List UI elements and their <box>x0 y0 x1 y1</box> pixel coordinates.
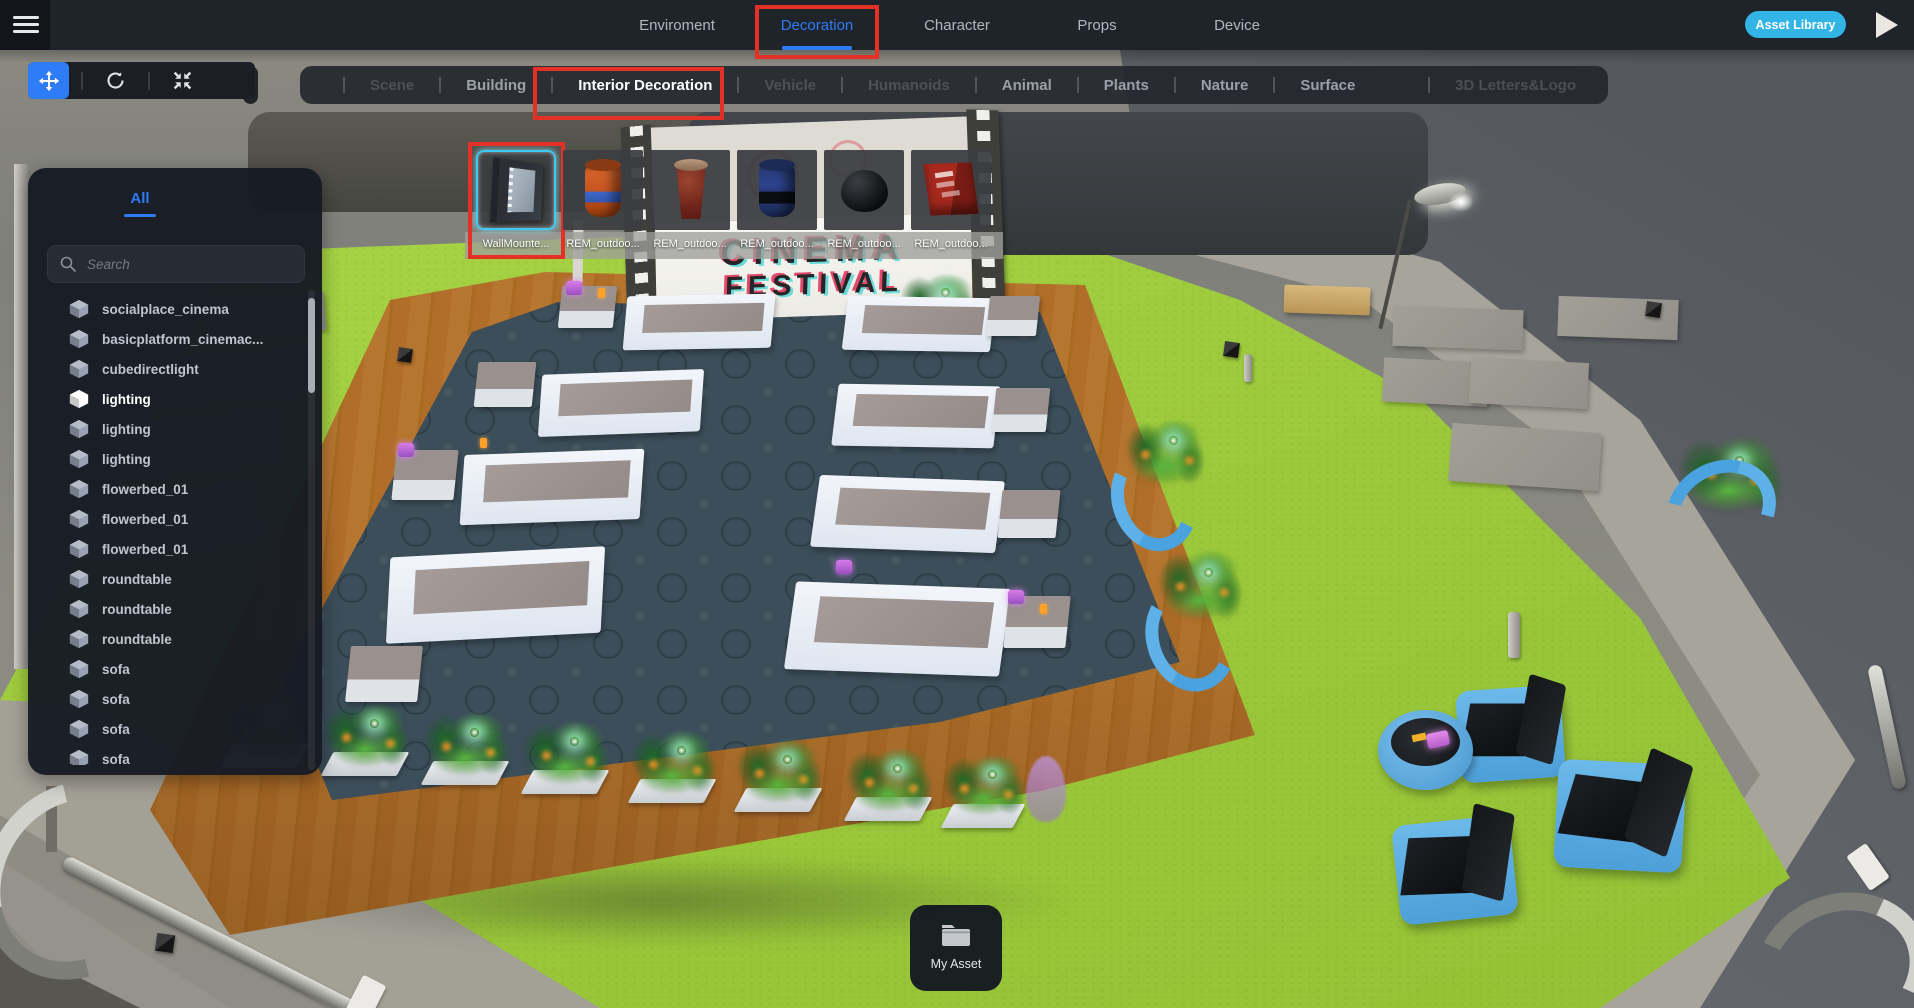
asset-tile[interactable]: REM_outdoo... <box>824 150 904 257</box>
black-cube-3d[interactable] <box>1223 341 1240 358</box>
asset-list-item-label: sofa <box>102 662 130 677</box>
glow-item-3d <box>480 438 487 448</box>
cube-icon <box>68 748 90 765</box>
stone-slab-3d[interactable] <box>1392 306 1523 351</box>
asset-thumbnail <box>563 150 643 230</box>
asset-thumbnail <box>650 150 730 230</box>
asset-list-item-label: roundtable <box>102 602 172 617</box>
plant-3d[interactable] <box>515 714 615 792</box>
blue-armchair-3d[interactable] <box>1553 759 1686 874</box>
plant-3d[interactable] <box>415 705 515 783</box>
topbar-shadow <box>0 50 1914 63</box>
side-table-3d[interactable] <box>474 362 537 407</box>
glow-item-3d <box>1040 604 1047 614</box>
side-table-3d[interactable] <box>986 296 1040 336</box>
cube-icon <box>68 658 90 680</box>
blue-armchair-3d[interactable] <box>1455 684 1566 783</box>
asset-list-item[interactable]: roundtable <box>40 624 300 654</box>
sofa-3d[interactable] <box>538 369 704 437</box>
folder-icon <box>940 922 972 948</box>
category-item-label: Humanoids <box>868 77 950 94</box>
sofa-3d[interactable] <box>386 546 605 644</box>
category-bar: Scene Building Interior Decoration Vehic… <box>300 66 1608 104</box>
asset-tile-label: REM_outdoo... <box>737 232 817 257</box>
asset-list-item[interactable]: flowerbed_01 <box>40 474 300 504</box>
asset-list-item[interactable]: roundtable <box>40 564 300 594</box>
cube-icon <box>68 598 90 620</box>
black-cube-3d[interactable] <box>155 933 175 953</box>
top-tab[interactable]: Enviroment <box>632 0 722 50</box>
category-item[interactable]: Humanoids <box>816 77 950 94</box>
asset-thumbnail <box>824 150 904 230</box>
category-item-label: Interior Decoration <box>578 77 712 94</box>
search-input[interactable] <box>85 256 292 273</box>
bollard-3d[interactable] <box>1508 612 1520 658</box>
asset-list-item[interactable]: sofa <box>40 714 300 744</box>
asset-list-item[interactable]: lighting <box>40 414 300 444</box>
asset-list-item-label: socialplace_cinema <box>102 302 229 317</box>
asset-thumbnail-art <box>650 150 730 230</box>
asset-list-item-label: roundtable <box>102 632 172 647</box>
plant-3d[interactable] <box>728 732 828 810</box>
asset-list-item[interactable]: basicplatform_cinemac... <box>40 324 300 354</box>
asset-tile[interactable]: WallMounte... <box>476 150 556 257</box>
scrollbar-thumb[interactable] <box>308 298 315 393</box>
asset-thumbnail <box>911 150 991 230</box>
asset-library-button[interactable]: Asset Library <box>1745 11 1846 38</box>
asset-list-item[interactable]: sofa <box>40 684 300 714</box>
top-tab-label: Decoration <box>781 17 854 34</box>
asset-list-item[interactable]: cubedirectlight <box>40 354 300 384</box>
asset-thumbnail-art <box>911 150 991 230</box>
cube-icon <box>68 358 90 380</box>
asset-list-item[interactable]: sofa <box>40 744 300 765</box>
blue-armchair-3d[interactable] <box>1391 814 1519 926</box>
sofa-3d[interactable] <box>623 294 776 351</box>
cube-icon <box>68 328 90 350</box>
asset-thumbnail-art <box>737 150 817 230</box>
cube-icon <box>68 628 90 650</box>
top-tab[interactable]: Device <box>1192 0 1282 50</box>
glow-item-3d[interactable] <box>566 281 582 295</box>
bench-table-3d[interactable] <box>1284 285 1371 316</box>
black-cube-3d[interactable] <box>1645 301 1662 318</box>
my-asset-label: My Asset <box>931 957 982 971</box>
category-item-label: Scene <box>370 77 414 94</box>
move-icon <box>38 70 60 92</box>
category-item[interactable]: Nature <box>1149 77 1249 94</box>
top-tabs: Enviroment Decoration Character Props <box>632 0 1282 50</box>
search-box <box>47 245 305 283</box>
asset-list-item-label: basicplatform_cinemac... <box>102 332 263 347</box>
cube-icon <box>68 718 90 740</box>
toolbar-divider <box>148 72 150 90</box>
collapse-tool-button[interactable] <box>162 62 203 99</box>
side-table-3d[interactable] <box>992 388 1051 432</box>
stone-slab-3d[interactable] <box>1448 423 1602 491</box>
asset-list-item[interactable]: sofa <box>40 654 300 684</box>
category-item[interactable]: Surface <box>1248 77 1355 94</box>
plant-3d[interactable] <box>838 741 938 819</box>
top-tab-label: Enviroment <box>639 17 715 34</box>
asset-tile[interactable]: REM_outdoo... <box>911 150 991 257</box>
my-asset-button[interactable]: My Asset <box>910 905 1002 991</box>
asset-tile-label: REM_outdoo... <box>911 232 991 257</box>
asset-list-item-label: sofa <box>102 692 130 707</box>
glow-item-3d[interactable] <box>836 560 852 574</box>
asset-list-item-label: sofa <box>102 752 130 766</box>
asset-list-item-label: lighting <box>102 452 151 467</box>
asset-list-item[interactable]: roundtable <box>40 594 300 624</box>
cube-icon <box>68 508 90 530</box>
plant-3d[interactable] <box>622 723 722 801</box>
asset-list-item-label: roundtable <box>102 572 172 587</box>
cube-icon <box>68 298 90 320</box>
asset-list: socialplace_cinema basicplatform_cinemac… <box>40 294 300 765</box>
category-item-label: 3D Letters&Logo <box>1455 77 1576 94</box>
scrollbar-track[interactable] <box>308 290 315 770</box>
asset-list-item[interactable]: lighting <box>40 444 300 474</box>
category-item-label: Surface <box>1300 77 1355 94</box>
asset-tile-label: REM_outdoo... <box>650 232 730 257</box>
cube-icon <box>68 388 90 410</box>
top-tab[interactable]: Character <box>912 0 1002 50</box>
asset-list-item-label: cubedirectlight <box>102 362 199 377</box>
hamburger-icon <box>13 16 39 19</box>
tab-all[interactable]: All <box>112 190 168 207</box>
top-tab[interactable]: Props <box>1052 0 1142 50</box>
asset-thumbnail-art <box>824 150 904 230</box>
category-item-label: Building <box>466 77 526 94</box>
cube-icon <box>68 418 90 440</box>
round-table-3d[interactable] <box>1378 710 1473 790</box>
cube-icon <box>68 478 90 500</box>
category-item[interactable]: Animal <box>950 77 1052 94</box>
top-tab-label: Props <box>1077 17 1116 34</box>
category-item[interactable]: Building <box>414 77 526 94</box>
asset-list-item-label: lighting <box>102 392 151 407</box>
top-tab-label: Device <box>1214 17 1260 34</box>
top-tab-label: Character <box>924 17 990 34</box>
collapse-icon <box>172 70 193 91</box>
sofa-3d[interactable] <box>842 296 997 352</box>
glow-item-3d <box>598 288 605 298</box>
asset-tile[interactable]: REM_outdoo... <box>563 150 643 257</box>
plant-3d[interactable] <box>315 696 415 774</box>
asset-list-item[interactable]: flowerbed_01 <box>40 504 300 534</box>
asset-strip: WallMounte... REM_outdoo... REM_outdoo..… <box>476 150 991 257</box>
sofa-3d[interactable] <box>831 384 1001 449</box>
asset-list-item-label: flowerbed_01 <box>102 542 188 557</box>
plant-3d[interactable] <box>935 748 1031 822</box>
play-button[interactable] <box>1876 12 1898 38</box>
toolbar-divider <box>81 72 83 90</box>
asset-tile-label: REM_outdoo... <box>824 232 904 257</box>
black-cube-3d[interactable] <box>397 347 413 363</box>
rotate-icon <box>105 70 126 91</box>
glow-item-3d[interactable] <box>398 443 414 457</box>
transform-toolbar <box>28 62 255 99</box>
cube-icon <box>68 448 90 470</box>
category-item-label: Vehicle <box>764 77 816 94</box>
category-item[interactable]: 3D Letters&Logo <box>1403 77 1576 94</box>
move-tool-button[interactable] <box>28 62 69 99</box>
search-icon <box>60 256 76 272</box>
sofa-3d[interactable] <box>784 581 1011 676</box>
asset-list-item[interactable]: socialplace_cinema <box>40 294 300 324</box>
asset-list-item-label: flowerbed_01 <box>102 512 188 527</box>
top-tab[interactable]: Decoration <box>772 0 862 50</box>
asset-list-item-label: flowerbed_01 <box>102 482 188 497</box>
category-item-label: Animal <box>1002 77 1052 94</box>
glow-item-3d[interactable] <box>1008 590 1024 604</box>
bollard-3d[interactable] <box>1244 354 1252 382</box>
hamburger-menu-button[interactable] <box>0 0 50 50</box>
asset-tile-label: WallMounte... <box>476 232 556 257</box>
asset-thumbnail-art <box>563 150 643 230</box>
rotate-tool-button[interactable] <box>95 62 136 99</box>
category-item-label: Nature <box>1201 77 1249 94</box>
asset-list-item-label: lighting <box>102 422 151 437</box>
stone-slab-3d[interactable] <box>1469 357 1589 409</box>
editor-window: CINEMA FESTIVAL Scene Build <box>0 0 1914 1008</box>
asset-thumbnail-art <box>478 152 554 228</box>
category-item[interactable]: Interior Decoration <box>526 77 712 94</box>
sofa-3d[interactable] <box>810 475 1005 553</box>
category-item-label: Plants <box>1104 77 1149 94</box>
asset-thumbnail <box>737 150 817 230</box>
top-bar: Enviroment Decoration Character Props <box>0 0 1914 50</box>
side-table-3d[interactable] <box>345 646 423 702</box>
category-item[interactable]: Plants <box>1052 77 1149 94</box>
lamp-glow <box>1448 192 1474 212</box>
cube-icon <box>68 568 90 590</box>
asset-tile-label: REM_outdoo... <box>563 232 643 257</box>
asset-list-panel: All socialplace_cinema <box>28 168 322 775</box>
asset-list-item-label: sofa <box>102 722 130 737</box>
side-table-3d[interactable] <box>997 490 1060 538</box>
side-table-3d[interactable] <box>391 450 458 500</box>
asset-list-item[interactable]: lighting <box>40 384 300 414</box>
category-item[interactable]: Scene <box>318 77 414 94</box>
cube-icon <box>68 688 90 710</box>
asset-tile[interactable]: REM_outdoo... <box>650 150 730 257</box>
asset-list-item[interactable]: flowerbed_01 <box>40 534 300 564</box>
asset-thumbnail <box>476 150 556 230</box>
asset-tile[interactable]: REM_outdoo... <box>737 150 817 257</box>
pole-3d <box>14 164 28 669</box>
sofa-3d[interactable] <box>460 449 645 525</box>
category-item[interactable]: Vehicle <box>712 77 816 94</box>
cube-icon <box>68 538 90 560</box>
